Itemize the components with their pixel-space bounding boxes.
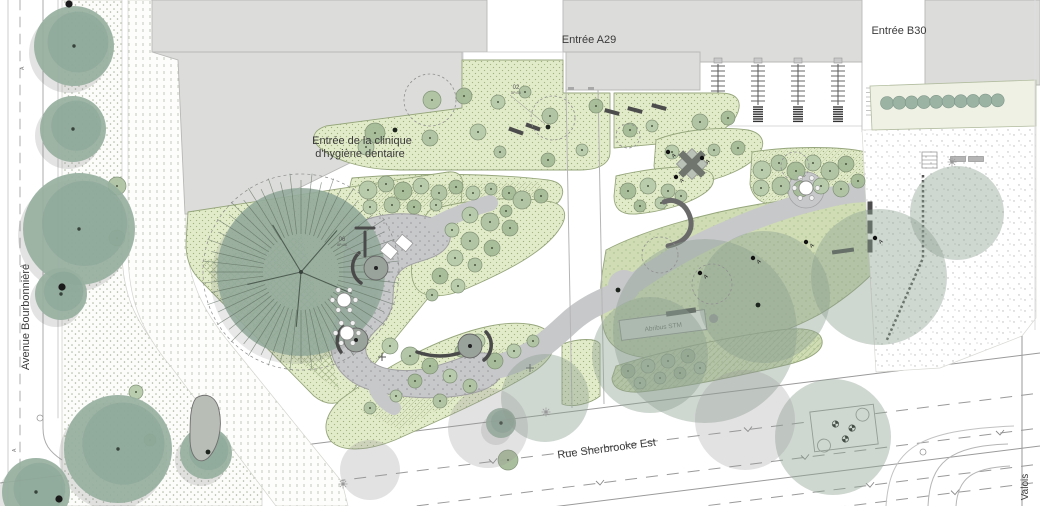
light-post [55,495,62,502]
chair [336,288,341,293]
tree-center [651,125,653,127]
hedge-shrub [991,94,1004,107]
tree-center [667,190,669,192]
tree-center [454,257,456,259]
survey-point [666,150,670,154]
survey-tick: A [12,448,18,452]
tree-canopy [698,231,830,363]
tree-center [505,210,507,212]
tree-center [369,407,371,409]
light-post [65,0,72,7]
hedge-shrub [930,95,943,108]
large-tree-inner [42,181,127,266]
chair [798,196,803,201]
tree-center [547,159,549,161]
large-tree-inner [82,403,164,485]
survey-tick: A [20,66,26,70]
lamp-icon [950,160,954,164]
door-mark [588,87,594,90]
tree-center [540,195,542,197]
tree-canopy [910,166,1004,260]
chair [353,298,358,303]
tree-center [463,95,465,97]
tree-center [508,192,510,194]
hedge-shrub [979,94,992,107]
label-clinique-1: Entrée de la clinique [312,135,412,147]
tree-center [391,204,393,206]
tree-trunk [116,447,119,450]
label-note-06-sub: AP=06 [337,243,347,247]
round-table [799,181,813,195]
tree-canopy-shadow [695,370,795,470]
chair [330,298,335,303]
tree-center [116,185,118,187]
tree-center [778,162,780,164]
building-b30 [925,0,1040,85]
tree-canopy-shadow [448,388,528,468]
round-table [340,326,354,340]
tree-center [402,190,404,192]
tree-center [857,180,859,182]
existing-tree-dot [616,288,621,293]
chair [339,321,344,326]
site-plan-canvas: Abribus STM AAAAAAAAAA Entrée A29 Entrée… [0,0,1040,506]
tree-center [795,170,797,172]
hedge-shrub [881,97,894,110]
tree-trunk [71,127,74,130]
chair [336,308,341,313]
tree-center [780,185,782,187]
tree-center [699,121,701,123]
door-mark [568,87,574,90]
tree-center [409,355,411,357]
tree-center [494,360,496,362]
site-plan: Abribus STM AAAAAAAAAA Entrée A29 Entrée… [0,0,1040,506]
tree-center [477,131,479,133]
hedge-shrub [893,96,906,109]
tree-center [581,149,583,151]
tree-center [469,214,471,216]
tree-center [491,247,493,249]
tree-center [627,190,629,192]
large-tree-inner [51,101,101,151]
tree-center [413,206,415,208]
valois-curve-outer [886,426,1014,506]
survey-point [674,175,678,179]
tree-center [845,163,847,165]
hedge-shrub [942,95,955,108]
chair [809,196,814,201]
hedge-shrub [967,94,980,107]
tree-center [420,185,422,187]
survey-point [804,240,808,244]
tree-center [374,132,376,134]
tree-center [549,115,551,117]
tree-center [367,189,369,191]
chair [350,321,355,326]
planter-tree [374,266,378,270]
tree-center [820,185,822,187]
tree-center [639,205,641,207]
tree-center [389,345,391,347]
tree-center [429,365,431,367]
chair [333,331,338,336]
rack-anchor [754,58,762,63]
tree-center [840,188,842,190]
tree-center [472,192,474,194]
label-avenue-bourbonniere: Avenue Bourbonnière [20,264,32,370]
survey-point [698,271,702,275]
building-clinic-top-west [152,0,487,52]
hedge-shrub [917,96,930,109]
tree-center [431,294,433,296]
tree-center [737,147,739,149]
chair [356,331,361,336]
tree-center [135,391,137,393]
tree-trunk [34,490,37,493]
planter-tree [468,344,472,348]
rack-anchor [794,58,802,63]
label-note-02-sub: AP=05 [511,91,521,95]
label-entree-a29: Entrée A29 [562,34,616,46]
chair [815,186,820,191]
tree-center [395,395,397,397]
rack-anchor [834,58,842,63]
tree-center [385,183,387,185]
rack-anchor [714,58,722,63]
manhole [37,415,43,421]
label-rue-sherbrooke: Rue Sherbrooke Est [557,437,657,462]
tree-center [490,188,492,190]
tree-center [431,99,433,101]
existing-tree-dot [756,303,761,308]
tree-trunk [59,292,62,295]
hedge-shrub [905,96,918,109]
tree-center [438,192,440,194]
tree-center [439,275,441,277]
existing-tree-dot [393,128,398,133]
tree-center [713,149,715,151]
chair [339,341,344,346]
tree-center [414,380,416,382]
lamp-icon [544,410,548,414]
round-table [337,293,351,307]
tree-center [595,105,597,107]
label-entree-b30: Entrée B30 [871,25,926,37]
tree-center [532,340,534,342]
tree-center [451,229,453,231]
tree-center [474,264,476,266]
survey-point [873,236,877,240]
tree-canopy-shadow [340,440,400,500]
tree-center [829,170,831,172]
tree-center [513,350,515,352]
tree-center [761,169,763,171]
label-clinique-2: d'hygiène dentaire [315,148,405,160]
large-tree-inner [44,272,84,312]
tree-center [455,186,457,188]
label-valois: Valois [1020,474,1031,501]
tree-trunk [299,270,303,274]
lamp-icon [341,482,345,486]
tree-center [629,129,631,131]
tree-center [524,91,526,93]
valois-curve-inner [956,466,1010,506]
chair [347,288,352,293]
existing-tree-dot [546,125,551,130]
building-a29-block [566,52,700,90]
tree-canopy [775,379,891,495]
tree-canopy [592,297,708,413]
chair [350,341,355,346]
bench [969,157,984,162]
tree-center [469,240,471,242]
tree-center [435,204,437,206]
tree-center [727,117,729,119]
light-post [58,283,65,290]
tree-center [760,187,762,189]
tree-center [489,221,491,223]
tree-center [429,137,431,139]
tree-center [469,385,471,387]
survey-point [751,256,755,260]
tree-center [812,162,814,164]
chair [792,186,797,191]
chair [347,308,352,313]
existing-tree-dot [206,450,211,455]
tree-center [680,195,682,197]
tree-trunk [77,227,80,230]
tree-center [457,285,459,287]
manhole [920,449,926,455]
tree-center [499,151,501,153]
hedge-shrub [954,95,967,108]
chair [809,176,814,181]
chair [798,176,803,181]
tree-trunk [72,44,75,47]
tree-center [449,375,451,377]
valois-curve-mid [928,444,1008,506]
tree-center [509,227,511,229]
tree-center [647,185,649,187]
tree-center [521,199,523,201]
large-tree-inner [48,12,109,73]
survey-point [700,156,704,160]
tree-center [497,101,499,103]
tree-center [439,400,441,402]
tree-center [369,206,371,208]
direction-arrow [596,480,604,485]
